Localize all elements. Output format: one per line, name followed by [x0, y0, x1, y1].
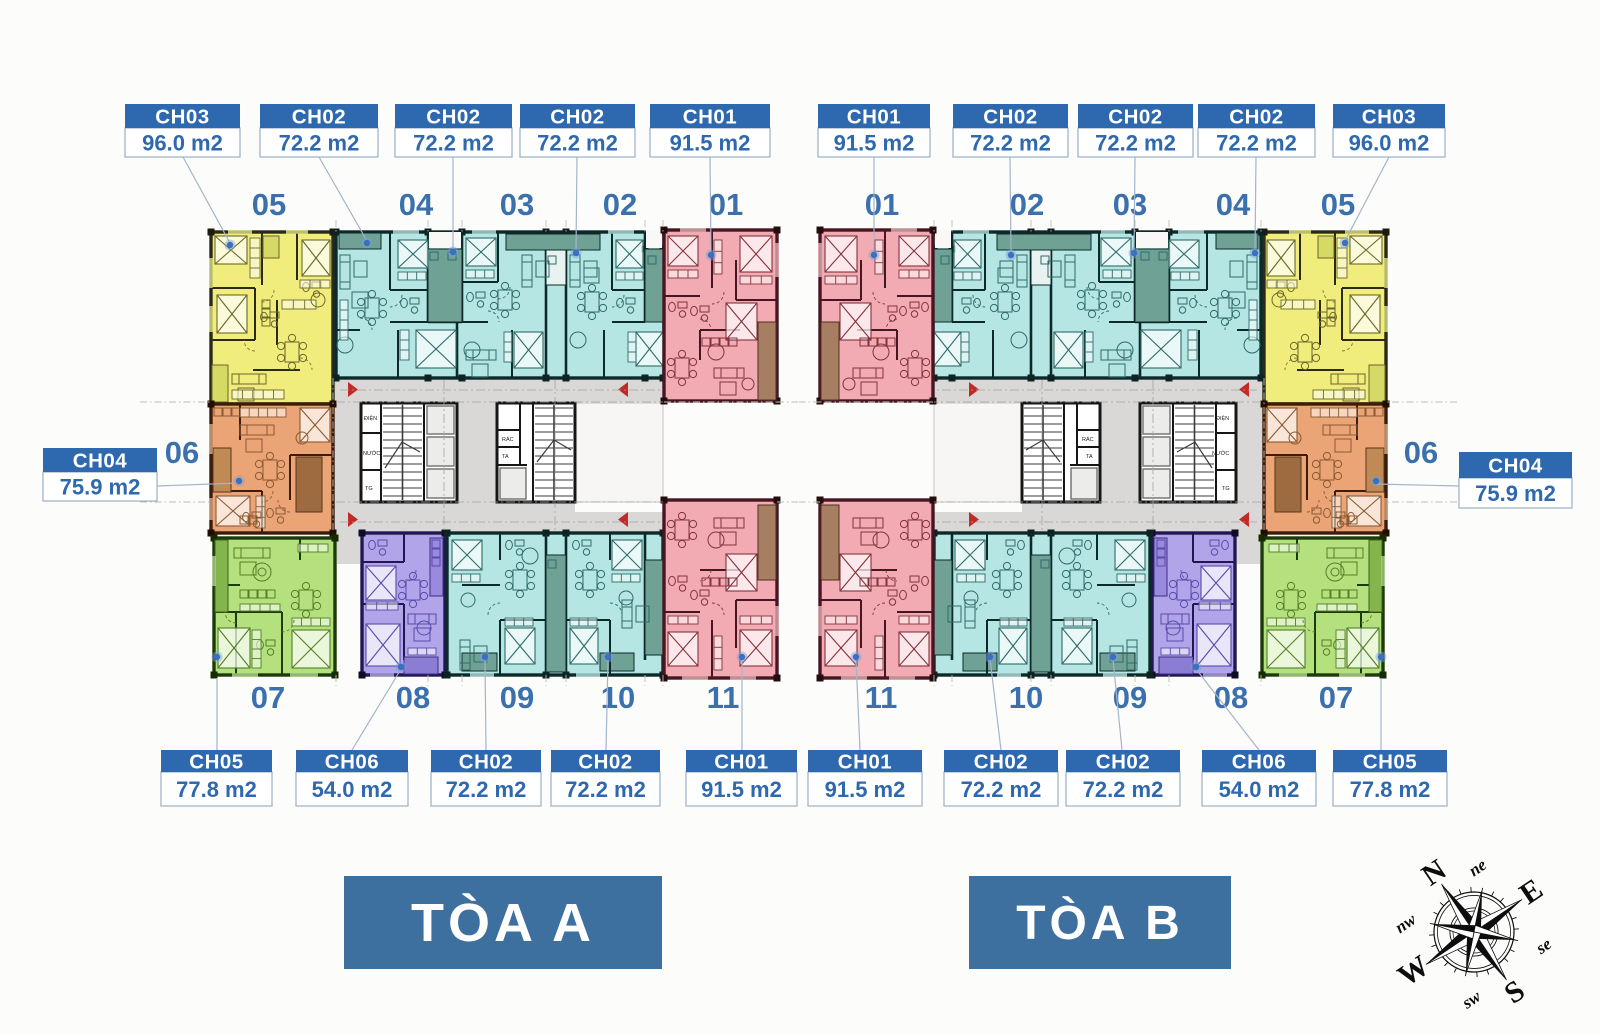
svg-text:72.2 m2: 72.2 m2: [279, 131, 360, 156]
svg-text:02: 02: [1010, 187, 1044, 222]
svg-text:10: 10: [601, 680, 635, 715]
svg-text:06: 06: [165, 435, 199, 470]
svg-text:77.8 m2: 77.8 m2: [1350, 777, 1431, 802]
svg-text:CH02: CH02: [292, 106, 346, 129]
svg-text:CH02: CH02: [426, 106, 480, 129]
svg-text:TA: TA: [1086, 454, 1093, 460]
svg-text:07: 07: [251, 680, 285, 715]
svg-text:NƯỚC: NƯỚC: [363, 450, 380, 457]
svg-text:72.2 m2: 72.2 m2: [446, 777, 527, 802]
svg-text:08: 08: [1214, 680, 1248, 715]
svg-text:TG: TG: [365, 486, 373, 492]
svg-text:CH04: CH04: [73, 450, 128, 473]
svg-text:CH05: CH05: [1363, 751, 1417, 774]
svg-text:RÁC: RÁC: [502, 436, 514, 443]
svg-text:11: 11: [865, 680, 898, 715]
svg-text:72.2 m2: 72.2 m2: [413, 131, 494, 156]
svg-text:01: 01: [865, 187, 899, 222]
svg-text:72.2 m2: 72.2 m2: [1095, 131, 1176, 156]
svg-text:09: 09: [500, 680, 534, 715]
svg-text:CH02: CH02: [550, 106, 604, 129]
svg-text:CH06: CH06: [325, 751, 379, 774]
svg-text:72.2 m2: 72.2 m2: [1083, 777, 1164, 802]
svg-text:CH02: CH02: [1108, 106, 1162, 129]
svg-text:72.2 m2: 72.2 m2: [961, 777, 1042, 802]
svg-text:72.2 m2: 72.2 m2: [565, 777, 646, 802]
svg-text:54.0 m2: 54.0 m2: [1219, 777, 1300, 802]
svg-text:CH03: CH03: [155, 106, 209, 129]
svg-text:CH01: CH01: [838, 751, 892, 774]
svg-text:75.9 m2: 75.9 m2: [1475, 481, 1556, 506]
svg-text:02: 02: [603, 187, 637, 222]
svg-text:CH05: CH05: [189, 751, 243, 774]
svg-text:CH01: CH01: [683, 106, 737, 129]
svg-text:75.9 m2: 75.9 m2: [60, 475, 141, 500]
svg-text:CH01: CH01: [847, 106, 901, 129]
svg-text:91.5 m2: 91.5 m2: [825, 777, 906, 802]
svg-text:ĐIỆN: ĐIỆN: [1216, 414, 1229, 422]
svg-text:05: 05: [252, 187, 286, 222]
svg-text:91.5 m2: 91.5 m2: [701, 777, 782, 802]
svg-text:08: 08: [396, 680, 430, 715]
svg-text:NƯỚC: NƯỚC: [1212, 450, 1229, 457]
svg-text:03: 03: [500, 187, 534, 222]
svg-text:04: 04: [399, 187, 434, 222]
svg-text:RÁC: RÁC: [1082, 436, 1094, 443]
svg-text:91.5 m2: 91.5 m2: [834, 131, 915, 156]
svg-text:72.2 m2: 72.2 m2: [970, 131, 1051, 156]
svg-text:05: 05: [1321, 187, 1355, 222]
svg-text:91.5 m2: 91.5 m2: [670, 131, 751, 156]
svg-text:ĐIỆN: ĐIỆN: [364, 414, 377, 422]
svg-text:TA: TA: [502, 454, 509, 460]
svg-text:54.0 m2: 54.0 m2: [312, 777, 393, 802]
svg-text:11: 11: [707, 680, 740, 715]
svg-text:72.2 m2: 72.2 m2: [537, 131, 618, 156]
svg-text:03: 03: [1113, 187, 1147, 222]
svg-text:04: 04: [1216, 187, 1251, 222]
svg-text:CH02: CH02: [1229, 106, 1283, 129]
svg-text:10: 10: [1009, 680, 1043, 715]
svg-text:CH02: CH02: [974, 751, 1028, 774]
svg-text:TÒA B: TÒA B: [1016, 895, 1184, 950]
svg-text:CH02: CH02: [578, 751, 632, 774]
svg-text:CH01: CH01: [714, 751, 768, 774]
svg-text:CH02: CH02: [1096, 751, 1150, 774]
svg-text:CH04: CH04: [1488, 455, 1543, 478]
svg-text:96.0 m2: 96.0 m2: [142, 131, 223, 156]
svg-text:TG: TG: [1222, 486, 1230, 492]
svg-text:72.2 m2: 72.2 m2: [1216, 131, 1297, 156]
svg-text:07: 07: [1319, 680, 1353, 715]
svg-text:CH03: CH03: [1362, 106, 1416, 129]
svg-text:06: 06: [1404, 435, 1438, 470]
svg-text:CH02: CH02: [459, 751, 513, 774]
svg-text:01: 01: [709, 187, 743, 222]
svg-text:77.8 m2: 77.8 m2: [176, 777, 257, 802]
svg-text:CH06: CH06: [1232, 751, 1286, 774]
svg-text:TÒA A: TÒA A: [411, 893, 595, 953]
svg-text:96.0 m2: 96.0 m2: [1349, 131, 1430, 156]
svg-text:CH02: CH02: [983, 106, 1037, 129]
